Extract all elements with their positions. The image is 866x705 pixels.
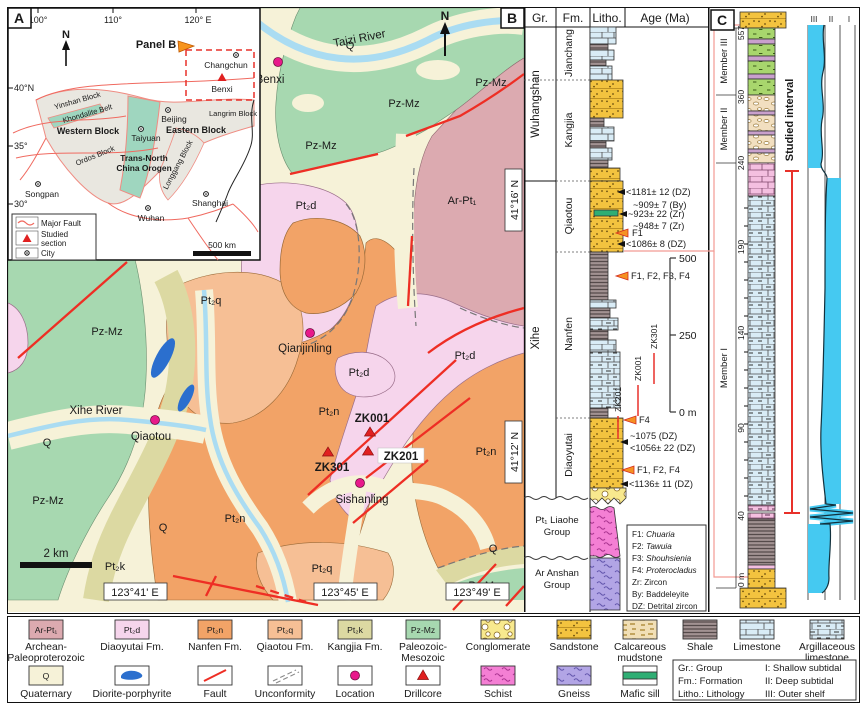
city-beijing: Beijing [161, 114, 187, 124]
fossil-name: Baddeleyite [646, 590, 689, 599]
label-zk301: ZK301 [315, 462, 350, 474]
fossil-code: F3: [632, 554, 644, 563]
block-langrim: Langrim Block [209, 109, 257, 118]
legend-studied-1: Studied [41, 230, 68, 239]
svg-text:Zr: Zircon: Zr: Zircon [632, 578, 667, 587]
member-iii-label: Member III [719, 38, 730, 83]
block-eastern: Eastern Block [166, 125, 227, 135]
city-songpan: Songpan [25, 189, 59, 199]
location-dot-qianjinling [306, 329, 315, 338]
location-icon [351, 671, 360, 680]
block-tnco-line1: Trans-North [120, 153, 167, 163]
group-liaohe-2: Group [544, 527, 570, 538]
facies-tick-i: I [848, 15, 850, 24]
group-xihe: Xihe [530, 326, 542, 349]
label-pt2n: Pt₂n [476, 446, 497, 458]
lbl-limestone: Limestone [733, 642, 781, 653]
chip-pt2n: Pt₂n [207, 625, 223, 635]
depth-240: 240 [736, 156, 746, 171]
age-f1f4: F1, F2, F3, F4 [631, 271, 690, 281]
lbl-sandstone: Sandstone [549, 642, 599, 653]
facies-tick-iii: III [811, 15, 818, 24]
fossil-code: DZ: [632, 602, 645, 611]
city-taiyuan: Taiyuan [131, 133, 161, 143]
age-1086: <1086± 8 (DZ) [626, 239, 686, 249]
label-north-a: N [62, 29, 70, 41]
info-gr: Gr.: Group [678, 663, 722, 674]
lbl-mafic-sill: Mafic sill [620, 689, 659, 700]
drill-zk201: ZK201 [613, 387, 623, 412]
scale-250: 250 [679, 330, 697, 342]
scale-bar [20, 562, 92, 568]
member-i-label: Member I [719, 348, 730, 388]
age-1075: ~1075 (DZ) [630, 431, 677, 441]
panel-b-label: B [507, 10, 517, 26]
label-pt2q: Pt₂q [201, 295, 222, 307]
chip-pzmz: Pz-Mz [411, 625, 435, 635]
header-fm: Fm. [563, 11, 584, 25]
map-area: Q Q Q Q Pz-Mz Pz-Mz Pz-Mz Pz-Mz Pz-Mz Pz… [7, 7, 860, 614]
mafic-sill-band [594, 210, 618, 216]
label-north-b: N [441, 9, 450, 23]
legend-row2-labels: Quaternary Diorite-porphyrite Fault Unco… [20, 689, 660, 700]
label-arpt1: Ar-Pt₁ [448, 195, 477, 207]
header-gr: Gr. [532, 11, 548, 25]
quaternary-patch [416, 60, 460, 80]
fm-nanfen: Nanfen [563, 317, 575, 351]
strat-column: Gr. Fm. Litho. Age (Ma) Wuhangshan Xihe … [524, 8, 708, 612]
label-zk001: ZK001 [355, 413, 390, 425]
svg-text:F3: Shouhsienia: F3: Shouhsienia [632, 554, 692, 563]
city-benxi: Benxi [211, 84, 232, 94]
lbl-quaternary: Quaternary [20, 689, 72, 700]
label-q: Q [159, 522, 168, 534]
chip-arpt1: Ar-Pt₁ [35, 625, 58, 635]
age-f1: F1 [632, 228, 643, 238]
age-923: ~923± 22 (Zr) [628, 209, 685, 219]
location-dot-sishanling [356, 479, 365, 488]
axis-tick: 40°N [14, 83, 34, 93]
label-pzmz: Pz-Mz [305, 140, 336, 152]
fossil-code: Zr: [632, 578, 642, 587]
svg-text:F1: Chuaria: F1: Chuaria [632, 530, 675, 539]
axis-tick: 110° [104, 15, 122, 25]
age-1056: <1056± 22 (DZ) [630, 443, 695, 453]
chip-pt2d: Pt₂d [124, 625, 140, 635]
fossil-key-box: F1: Chuaria F2: Tawuia F3: Shouhsienia F… [627, 525, 706, 611]
lbl-kangjia: Kangjia Fm. [328, 642, 383, 653]
label-pzmz: Pz-Mz [388, 98, 419, 110]
header-age: Age (Ma) [640, 11, 689, 25]
fm-qiaotou: Qiaotou [563, 197, 575, 234]
svg-text:By: Baddeleyite: By: Baddeleyite [632, 590, 689, 599]
info-iii: III: Outer shelf [765, 689, 825, 700]
age-1181: <1181± 12 (DZ) [626, 187, 691, 197]
location-dot-benxi [274, 58, 283, 67]
chip-pt2q: Pt₂q [277, 625, 293, 635]
axis-tick: 120° E [184, 15, 211, 25]
lbl-gneiss: Gneiss [558, 689, 590, 700]
label-pt2d: Pt₂d [349, 367, 370, 379]
group-liaohe-1: Pt₁ Liaohe [535, 515, 578, 526]
group-anshan-2: Group [544, 580, 570, 591]
age-f1f2f4: F1, F2, F4 [637, 465, 680, 475]
legend-city: City [41, 249, 55, 258]
label-pt2n: Pt₂n [319, 406, 340, 418]
svg-text:F2: Tawuia: F2: Tawuia [632, 542, 672, 551]
group-wuhangshan: Wuhangshan [530, 70, 542, 138]
label-zk201: ZK201 [384, 451, 419, 463]
block-western: Western Block [57, 126, 120, 136]
depth-40: 40 [736, 511, 746, 521]
label-pt2d: Pt₂d [296, 200, 317, 212]
lat-label: 41°16' N [509, 180, 521, 220]
label-xihe-river: Xihe River [69, 405, 122, 417]
lbl-location: Location [336, 689, 375, 700]
fossil-name: Zircon [644, 578, 667, 587]
lbl-archean-2: Paleoproterozoic [8, 653, 85, 664]
panel-a-legend: Major Fault Studied section City [12, 214, 96, 260]
scale-0m: 0 m [679, 407, 697, 419]
lbl-fault: Fault [204, 689, 227, 700]
info-fm: Fm.: Formation [678, 676, 742, 687]
detail-column-panel-c: Member III Member II Member I 557 360 24… [708, 8, 858, 612]
drill-zk301: ZK301 [649, 324, 659, 349]
location-dot-qiaotou [151, 416, 160, 425]
svg-text:F4: Proterocladus: F4: Proterocladus [632, 566, 697, 575]
lbl-nanfen: Nanfen Fm. [188, 642, 242, 653]
depth-0m: 0 m [736, 573, 746, 587]
quaternary-patch [292, 94, 324, 112]
lbl-archean-1: Archean- [25, 642, 67, 653]
legend-row1-chips [29, 620, 844, 639]
label-sishanling: Sishanling [335, 494, 388, 506]
member-ii-label: Member II [719, 108, 730, 151]
group-anshan-1: Ar Anshan [535, 568, 579, 579]
lbl-drillcore: Drillcore [404, 689, 442, 700]
fm-diaoyutai: Diaoyutai [563, 433, 575, 477]
info-ii: II: Deep subtidal [765, 676, 834, 687]
city-wuhan: Wuhan [138, 213, 165, 223]
panel-b-callout: Panel B [136, 39, 176, 51]
label-pzmz: Pz-Mz [475, 77, 506, 89]
axis-tick: 30° [14, 199, 28, 209]
label-q: Q [43, 437, 52, 449]
fossil-name: Tawuia [646, 542, 672, 551]
inset-map-panel-a: 100° 110° 120° E 40°N 35° 30° N Panel B … [8, 8, 261, 261]
depth-190: 190 [736, 240, 746, 255]
lbl-calcmud-1: Calcareous [614, 642, 666, 653]
lbl-pzmz-2: Mesozoic [401, 653, 445, 664]
lat-label: 41°12' N [509, 432, 521, 472]
header-litho: Litho. [592, 11, 621, 25]
axis-tick: 35° [14, 141, 28, 151]
studied-interval-label: Studied interval [784, 79, 796, 162]
fossil-name: Chuaria [646, 530, 675, 539]
drill-zk001: ZK001 [633, 356, 643, 381]
figure-root: Q Q Q Q Pz-Mz Pz-Mz Pz-Mz Pz-Mz Pz-Mz Pz… [0, 0, 866, 705]
legend-svg: Ar-Pt₁ Pt₂d Pt₂n Pt₂q Pt₂k Pz-Mz Archean… [8, 617, 859, 702]
legend-major-fault: Major Fault [41, 219, 82, 228]
lbl-shale: Shale [687, 642, 714, 653]
age-1136: <1136± 11 (DZ) [629, 479, 693, 489]
fossil-name: Shouhsienia [646, 554, 692, 563]
depth-140: 140 [736, 326, 746, 341]
label-pt2k: Pt₂k [105, 561, 126, 573]
legend-studied-2: section [41, 239, 66, 248]
lon-label: 123°41' E [111, 587, 158, 599]
lbl-calcmud-2: mudstone [617, 653, 662, 664]
age-f4: F4 [639, 415, 650, 425]
legend-row1-chip-texts: Ar-Pt₁ Pt₂d Pt₂n Pt₂q Pt₂k Pz-Mz [35, 625, 435, 635]
block-tnco-line2: China Orogen [116, 163, 171, 173]
fm-jianchang: Jianchang [563, 29, 575, 77]
chip-pt2k: Pt₂k [347, 625, 363, 635]
label-pzmz: Pz-Mz [91, 326, 122, 338]
lon-label: 123°49' E [453, 587, 500, 599]
fossil-name: Detrital zircon [647, 602, 697, 611]
label-pt2q: Pt₂q [312, 563, 333, 575]
lbl-unconformity: Unconformity [255, 689, 317, 700]
fossil-name: Proterocladus [646, 566, 697, 575]
label-q: Q [489, 543, 498, 555]
label-qiaotou: Qiaotou [131, 431, 171, 443]
fm-kangjia: Kangjia [563, 112, 575, 147]
label-pzmz: Pz-Mz [32, 495, 63, 507]
info-litho: Litho.: Lithology [678, 689, 745, 700]
fossil-code: F1: [632, 530, 644, 539]
chip-q: Q [43, 671, 50, 681]
city-changchun: Changchun [204, 60, 248, 70]
valley-central [404, 134, 408, 308]
lbl-conglomerate: Conglomerate [466, 642, 531, 653]
city-shanghai: Shanghai [192, 198, 228, 208]
lbl-pzmz-1: Paleozoic- [399, 642, 447, 653]
facies-fill-base [808, 524, 831, 593]
lon-label: 123°45' E [321, 587, 368, 599]
abbreviation-info-box: Gr.: Group Fm.: Formation Litho.: Lithol… [673, 660, 856, 700]
scale-bar-a [193, 251, 251, 256]
depth-360: 360 [736, 90, 746, 105]
scale-label: 2 km [44, 548, 69, 560]
label-qianjinling: Qianjinling [278, 343, 332, 355]
fossil-code: F2: [632, 542, 644, 551]
facies-tick-ii: II [829, 15, 833, 24]
svg-text:DZ: Detrital zircon: DZ: Detrital zircon [632, 602, 698, 611]
fossil-code: By: [632, 590, 644, 599]
info-i: I: Shallow subtidal [765, 663, 842, 674]
label-pt2n: Pt₂n [225, 513, 246, 525]
legend: Ar-Pt₁ Pt₂d Pt₂n Pt₂q Pt₂k Pz-Mz Archean… [7, 616, 860, 703]
lbl-diorite: Diorite-porphyrite [93, 689, 172, 700]
lbl-schist: Schist [484, 689, 512, 700]
scale-label-a: 500 km [208, 240, 236, 250]
scale-500: 500 [679, 253, 697, 265]
lbl-diaoyutai: Diaoyutai Fm. [100, 642, 164, 653]
panel-c-label: C [717, 12, 727, 28]
lbl-qiaotou: Qiaotou Fm. [257, 642, 314, 653]
fossil-code: F4: [632, 566, 644, 575]
lbl-arglime-1: Argillaceous [799, 642, 855, 653]
label-pt2d: Pt₂d [455, 350, 476, 362]
panel-a-label: A [14, 10, 24, 26]
